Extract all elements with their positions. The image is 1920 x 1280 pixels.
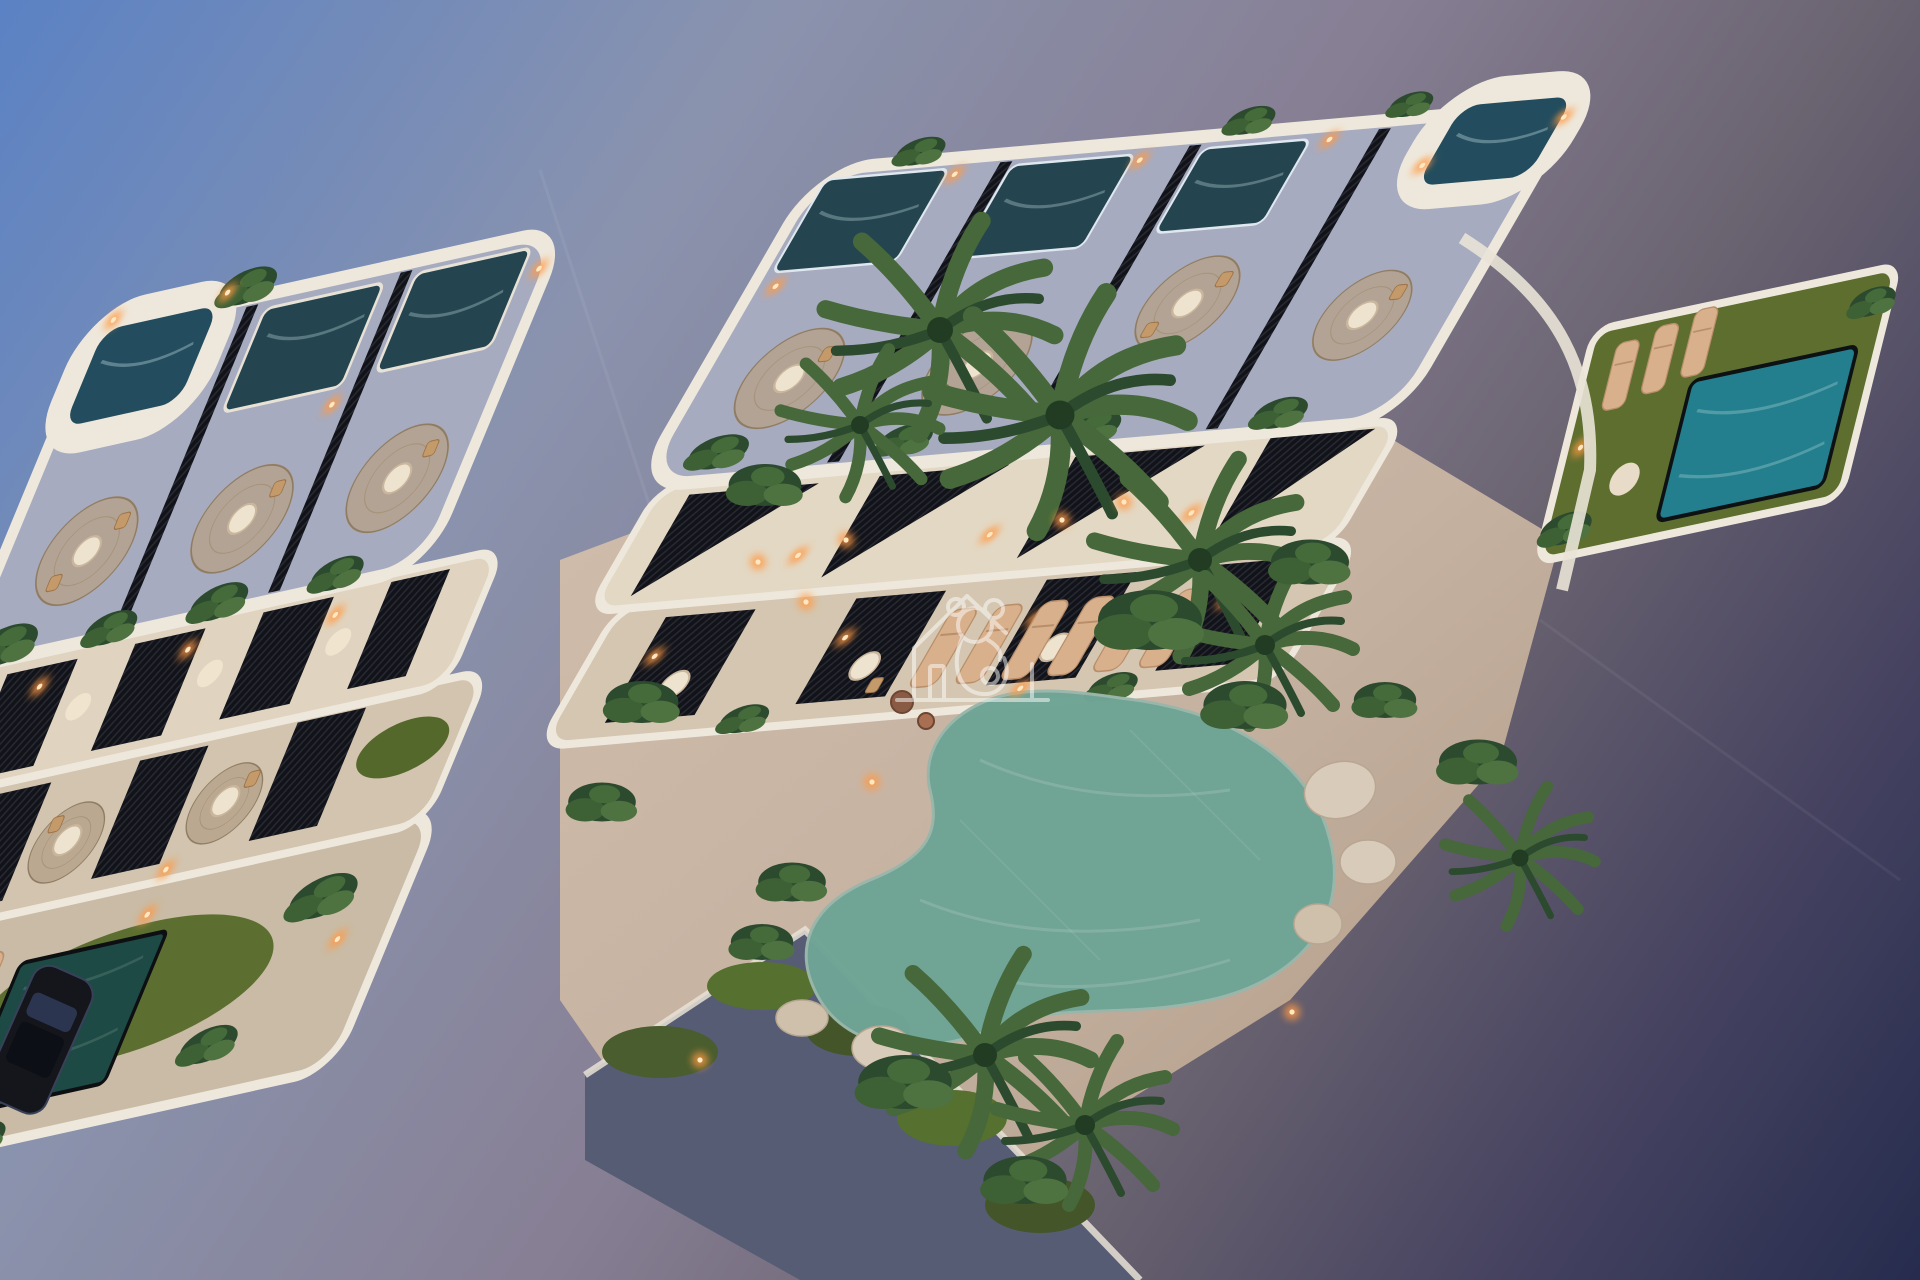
path-lamp <box>750 554 766 570</box>
path-lamp <box>1284 1004 1300 1020</box>
path-lamp <box>798 594 814 610</box>
path-lamp <box>838 532 854 548</box>
boulder <box>1294 904 1342 944</box>
render-canvas <box>0 0 1920 1280</box>
path-lamp <box>864 774 880 790</box>
boulder <box>1340 840 1396 884</box>
path-lamp <box>1054 512 1070 528</box>
terracotta-urn <box>918 713 934 729</box>
path-lamp <box>692 1052 708 1068</box>
path-lamp <box>1116 494 1132 510</box>
render-stage <box>0 0 1920 1280</box>
boulder <box>776 1000 828 1036</box>
wall-moss <box>602 1026 718 1078</box>
